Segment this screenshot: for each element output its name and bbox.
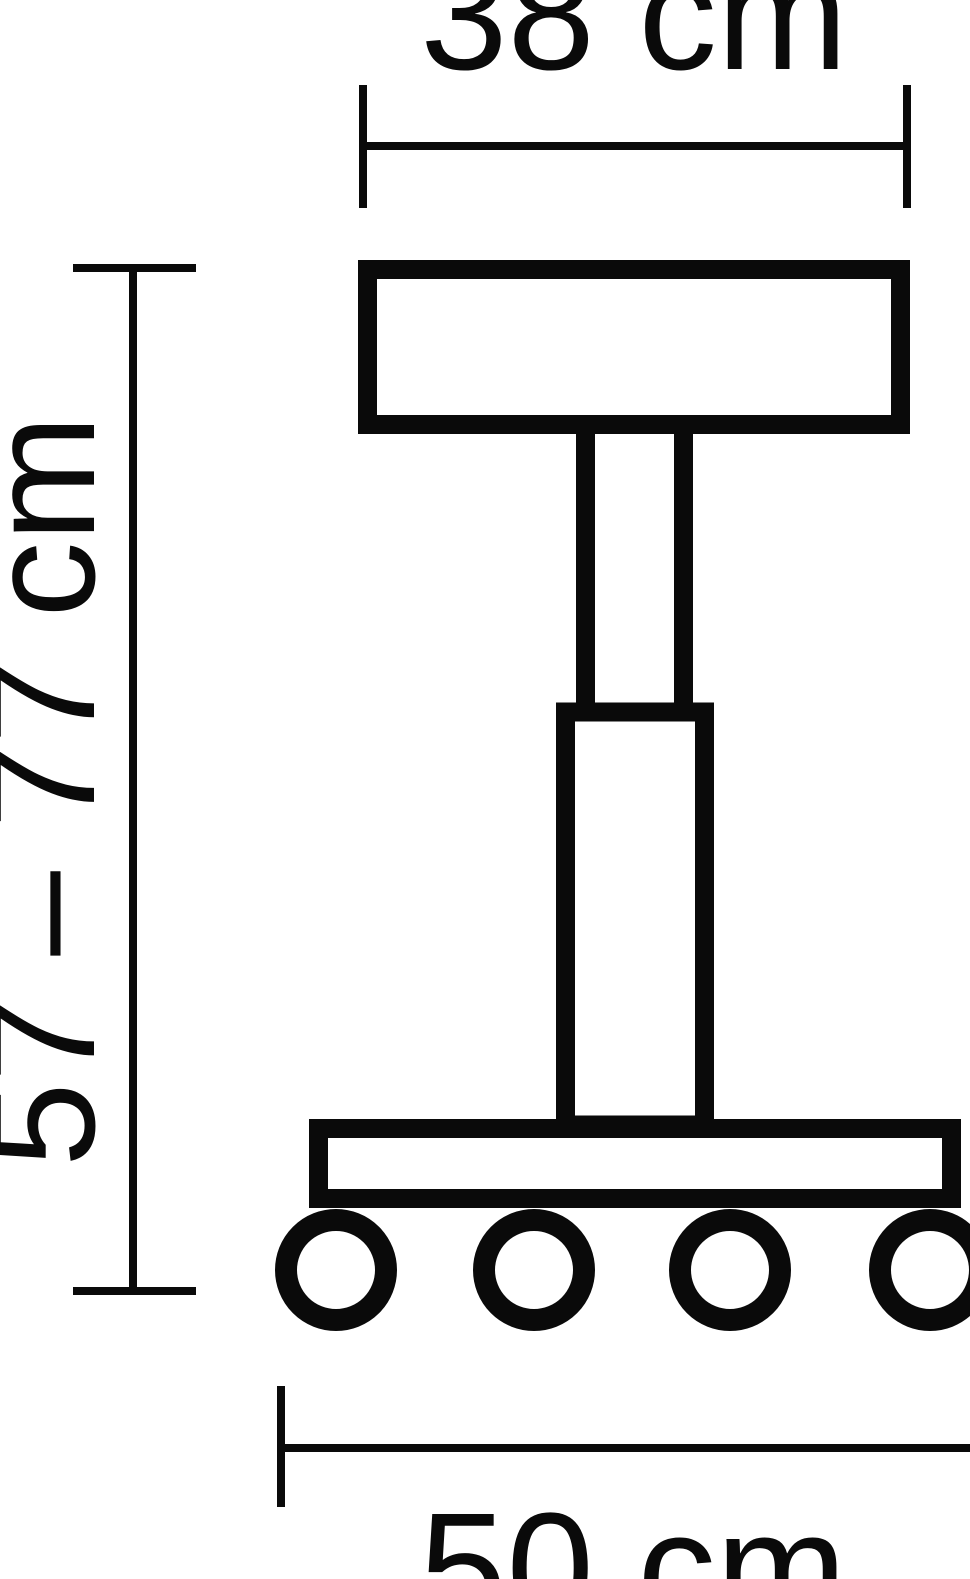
svg-text:57 – 77 cm: 57 – 77 cm: [0, 415, 127, 1167]
svg-text:38 cm: 38 cm: [420, 0, 848, 103]
svg-text:50 cm: 50 cm: [419, 1481, 847, 1579]
